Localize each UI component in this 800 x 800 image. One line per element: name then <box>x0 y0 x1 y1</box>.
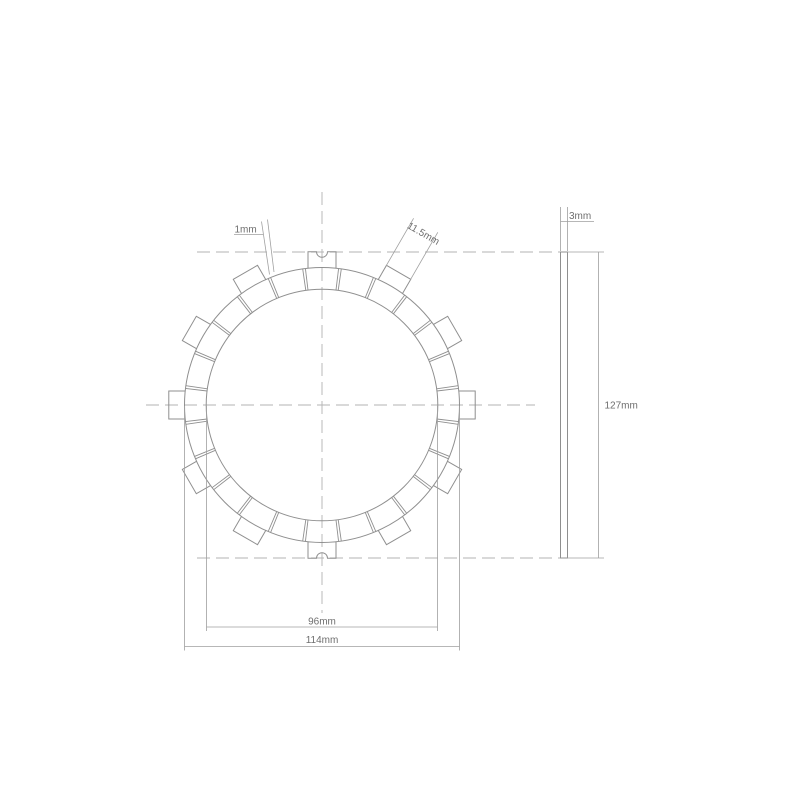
dimension-label-127mm: 127mm <box>605 401 638 412</box>
dimension-label-1mm: 1mm <box>235 225 257 236</box>
pad-gap-line <box>239 498 252 515</box>
pad-gap-line <box>186 388 208 391</box>
dimensions: 96mm 114mm 3mm 127mm 1mm 11.5mm <box>185 207 638 651</box>
drive-lug <box>433 316 461 348</box>
drive-lug <box>378 516 410 544</box>
dimension-thickness: 3mm <box>561 207 595 251</box>
dimension-label-96mm: 96mm <box>308 617 336 628</box>
pad-gap-line <box>437 388 459 391</box>
drive-lug <box>378 265 410 293</box>
dimension-label-114mm: 114mm <box>306 635 339 646</box>
pad-gap-line <box>214 320 231 333</box>
pad-gap-line <box>186 419 208 422</box>
dimension-lug-width: 11.5mm <box>386 218 441 280</box>
pad-gap-line <box>415 322 432 335</box>
pad-gap-line <box>392 295 405 312</box>
pad-gap-line <box>393 297 406 314</box>
pad-gap-line <box>437 419 459 422</box>
pad-gap-line <box>212 475 229 488</box>
pad-gap-line <box>237 496 250 513</box>
dimension-overall-diameter: 127mm <box>568 252 638 558</box>
pad-gap-line <box>415 475 432 488</box>
pad-gap-line <box>338 269 341 290</box>
dimension-lines-127mm <box>568 252 605 558</box>
side-view-plate <box>561 252 568 558</box>
pad-gap-line <box>212 322 229 335</box>
pad-gap-line <box>303 520 306 541</box>
dimension-label-11.5mm: 11.5mm <box>405 221 441 248</box>
pad-gap-line <box>237 297 250 314</box>
pad-gap-line <box>437 421 458 424</box>
drive-lug <box>233 265 265 293</box>
pad-gap-line <box>437 386 458 389</box>
pad-gap-line <box>413 320 430 333</box>
pad-gap-line <box>393 496 406 513</box>
drawing-canvas: 96mm 114mm 3mm 127mm 1mm 11.5mm <box>0 0 800 800</box>
pad-gap-line <box>336 269 339 291</box>
clutch-friction-plate-drawing: 96mm 114mm 3mm 127mm 1mm 11.5mm <box>0 0 800 800</box>
drive-lug <box>233 516 265 544</box>
pad-gap-line <box>413 476 430 489</box>
pad-gap-line <box>338 520 341 541</box>
pad-gap-line <box>214 476 231 489</box>
pad-gap-line <box>336 520 339 542</box>
dimension-pad-gap: 1mm <box>234 220 274 275</box>
pad-gap-line <box>239 295 252 312</box>
plate-side-profile <box>561 252 568 558</box>
pad-gap-line <box>186 386 207 389</box>
dimension-label-3mm: 3mm <box>569 211 591 222</box>
pad-gap-line <box>186 421 207 424</box>
centerlines <box>146 192 566 613</box>
drive-lug <box>182 316 210 348</box>
pad-gap-line <box>305 520 308 542</box>
pad-gap-line <box>392 498 405 515</box>
pad-gap-line <box>305 269 308 291</box>
pad-gap-line <box>303 269 306 290</box>
